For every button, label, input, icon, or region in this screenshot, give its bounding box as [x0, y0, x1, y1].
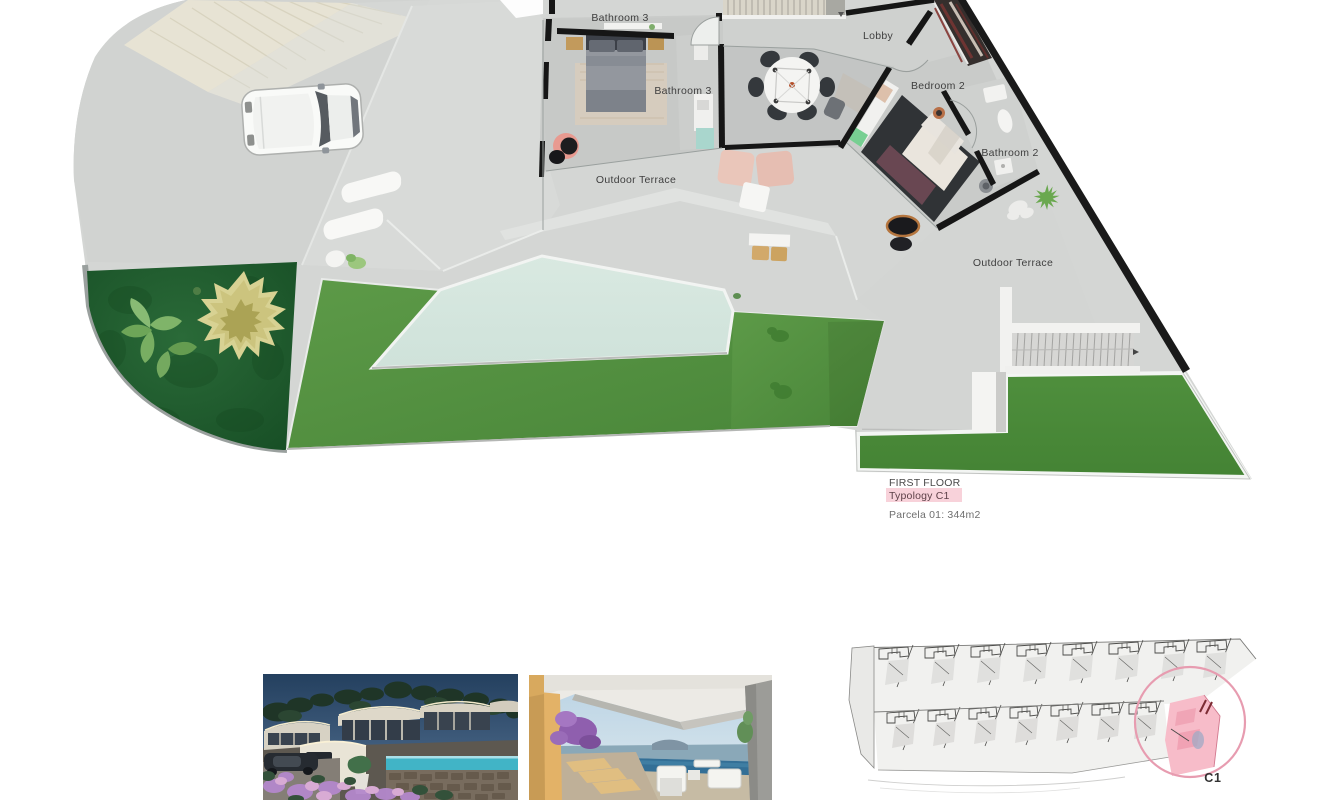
- svg-text:Lobby: Lobby: [863, 30, 894, 42]
- svg-text:Outdoor Terrace: Outdoor Terrace: [596, 174, 676, 186]
- svg-text:Outdoor Terrace: Outdoor Terrace: [973, 257, 1053, 269]
- svg-text:Bathroom 3: Bathroom 3: [654, 85, 711, 97]
- svg-text:FIRST FLOOR: FIRST FLOOR: [889, 477, 961, 489]
- svg-text:Bathroom 2: Bathroom 2: [981, 147, 1038, 159]
- svg-text:C1: C1: [1204, 771, 1222, 785]
- svg-text:Typology C1: Typology C1: [889, 490, 950, 502]
- svg-text:Parcela 01: 344m2: Parcela 01: 344m2: [889, 509, 981, 521]
- svg-text:Bathroom 3: Bathroom 3: [591, 12, 648, 24]
- svg-text:Bedroom 2: Bedroom 2: [911, 80, 965, 92]
